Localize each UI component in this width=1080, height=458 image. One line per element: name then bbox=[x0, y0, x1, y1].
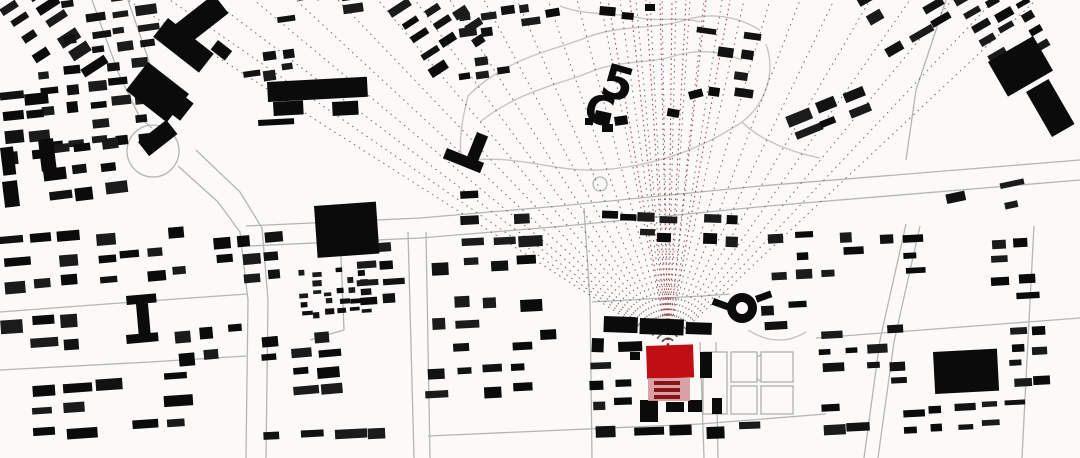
building bbox=[332, 101, 359, 116]
building bbox=[640, 400, 658, 422]
building bbox=[933, 349, 999, 394]
building bbox=[614, 397, 632, 405]
building bbox=[484, 386, 502, 398]
building bbox=[590, 362, 611, 369]
building bbox=[60, 314, 78, 328]
building bbox=[516, 255, 536, 265]
building bbox=[64, 339, 80, 351]
building bbox=[147, 270, 166, 282]
building bbox=[1013, 238, 1028, 248]
building bbox=[313, 290, 321, 294]
building bbox=[32, 385, 55, 397]
building bbox=[821, 269, 835, 277]
building bbox=[483, 297, 497, 308]
building bbox=[428, 368, 445, 379]
building bbox=[321, 383, 343, 395]
building bbox=[291, 347, 312, 358]
building bbox=[846, 422, 870, 432]
building bbox=[1012, 344, 1025, 352]
building bbox=[72, 164, 87, 175]
building bbox=[602, 211, 618, 219]
map-canvas: 5C bbox=[0, 0, 1080, 458]
building bbox=[314, 331, 329, 343]
building bbox=[620, 214, 637, 221]
building bbox=[512, 342, 532, 351]
building bbox=[298, 270, 304, 276]
building bbox=[460, 215, 479, 225]
building bbox=[1016, 292, 1040, 300]
building bbox=[795, 231, 813, 238]
building bbox=[880, 234, 894, 244]
building bbox=[712, 398, 722, 414]
building bbox=[213, 237, 231, 250]
building bbox=[903, 409, 925, 417]
building bbox=[519, 4, 529, 13]
building bbox=[432, 262, 449, 276]
building bbox=[242, 253, 261, 265]
building bbox=[337, 288, 344, 294]
building bbox=[621, 12, 634, 20]
building bbox=[32, 315, 54, 326]
building bbox=[299, 293, 308, 298]
building bbox=[520, 299, 543, 312]
building bbox=[325, 308, 335, 315]
building bbox=[283, 49, 295, 59]
building bbox=[1032, 326, 1046, 335]
building bbox=[464, 257, 479, 265]
building bbox=[168, 226, 184, 238]
building bbox=[459, 13, 471, 22]
building bbox=[67, 427, 98, 440]
building bbox=[824, 424, 846, 435]
building bbox=[630, 352, 640, 360]
building bbox=[362, 309, 372, 313]
building bbox=[889, 362, 905, 372]
building bbox=[708, 87, 720, 97]
building bbox=[1010, 327, 1027, 335]
building bbox=[453, 343, 469, 352]
building bbox=[768, 234, 784, 244]
building bbox=[357, 260, 377, 268]
building bbox=[867, 344, 888, 354]
site-annex-wing bbox=[654, 395, 680, 399]
building bbox=[614, 115, 628, 126]
building bbox=[66, 101, 78, 113]
building bbox=[34, 278, 51, 289]
building bbox=[4, 281, 26, 295]
building bbox=[361, 288, 372, 295]
building bbox=[659, 216, 677, 223]
site-analysis-figure: 5C bbox=[0, 0, 1080, 458]
background-layer bbox=[0, 0, 1080, 458]
building bbox=[704, 214, 721, 223]
building bbox=[700, 352, 712, 378]
building bbox=[203, 349, 218, 360]
site-annex-wing bbox=[654, 381, 680, 385]
building bbox=[56, 230, 80, 242]
building bbox=[102, 137, 119, 150]
building bbox=[540, 329, 557, 340]
building bbox=[262, 336, 279, 348]
building bbox=[958, 424, 973, 430]
building bbox=[199, 327, 213, 340]
building bbox=[358, 270, 365, 276]
building bbox=[903, 234, 924, 243]
building bbox=[954, 403, 975, 411]
building bbox=[727, 215, 738, 224]
building bbox=[867, 362, 880, 369]
building bbox=[312, 272, 322, 277]
building bbox=[368, 428, 386, 440]
building bbox=[379, 260, 393, 269]
open-parcel bbox=[731, 386, 757, 414]
building bbox=[455, 320, 479, 329]
building bbox=[74, 186, 93, 201]
building bbox=[982, 401, 997, 407]
building bbox=[640, 229, 655, 236]
building bbox=[264, 231, 283, 243]
open-parcel bbox=[731, 352, 757, 382]
building bbox=[845, 347, 857, 353]
building bbox=[350, 307, 360, 311]
building bbox=[615, 379, 631, 387]
building bbox=[761, 305, 774, 315]
building bbox=[666, 402, 684, 412]
building bbox=[494, 237, 516, 246]
building bbox=[348, 287, 355, 293]
building bbox=[454, 296, 470, 308]
building bbox=[2, 180, 20, 208]
building bbox=[147, 247, 163, 257]
building bbox=[32, 407, 52, 415]
building bbox=[1014, 378, 1032, 387]
building bbox=[482, 364, 502, 373]
building bbox=[797, 252, 809, 260]
building bbox=[63, 65, 80, 75]
building bbox=[634, 427, 664, 436]
building bbox=[511, 363, 525, 371]
building bbox=[645, 4, 655, 11]
building bbox=[326, 298, 333, 304]
ring-building-courtyard bbox=[736, 302, 748, 314]
building bbox=[164, 394, 194, 407]
building bbox=[474, 56, 488, 66]
building bbox=[903, 252, 916, 259]
building bbox=[337, 308, 346, 314]
building bbox=[788, 301, 806, 308]
building bbox=[172, 266, 186, 275]
building bbox=[96, 233, 116, 246]
map-background bbox=[0, 0, 1080, 458]
building bbox=[273, 100, 304, 116]
building bbox=[991, 255, 1008, 263]
building bbox=[425, 390, 448, 398]
building bbox=[703, 233, 717, 244]
building bbox=[518, 235, 543, 247]
building bbox=[179, 352, 196, 366]
building bbox=[30, 337, 58, 348]
building bbox=[741, 49, 754, 60]
building bbox=[237, 235, 250, 247]
building bbox=[92, 118, 109, 129]
building bbox=[686, 322, 712, 335]
building bbox=[335, 267, 342, 272]
building bbox=[1009, 359, 1021, 365]
building bbox=[38, 71, 49, 79]
building bbox=[706, 426, 724, 439]
building bbox=[174, 331, 191, 344]
building bbox=[481, 27, 493, 37]
building bbox=[891, 377, 907, 384]
building bbox=[95, 378, 122, 391]
building bbox=[513, 382, 533, 391]
building bbox=[167, 418, 185, 427]
building bbox=[739, 421, 760, 429]
building bbox=[514, 213, 530, 224]
building bbox=[88, 80, 107, 92]
building bbox=[725, 236, 738, 247]
building bbox=[293, 367, 309, 375]
building bbox=[302, 311, 313, 316]
building bbox=[107, 62, 120, 71]
building bbox=[63, 402, 85, 414]
building bbox=[4, 129, 24, 144]
building bbox=[312, 280, 322, 287]
building bbox=[268, 269, 281, 279]
building bbox=[657, 233, 671, 243]
open-parcel bbox=[761, 386, 793, 414]
building bbox=[301, 429, 324, 437]
building bbox=[930, 423, 942, 431]
site-marker-layer bbox=[646, 344, 694, 401]
building bbox=[457, 367, 471, 374]
open-parcel bbox=[761, 352, 793, 382]
building bbox=[771, 272, 786, 280]
building bbox=[595, 426, 615, 438]
building bbox=[592, 338, 604, 352]
building bbox=[639, 318, 684, 336]
building bbox=[688, 400, 702, 412]
building bbox=[1033, 375, 1050, 385]
building bbox=[764, 321, 787, 330]
building bbox=[618, 341, 642, 352]
building bbox=[379, 242, 392, 252]
building bbox=[262, 51, 276, 62]
building bbox=[263, 70, 277, 82]
building bbox=[335, 428, 368, 439]
building bbox=[135, 114, 147, 123]
building bbox=[301, 302, 308, 308]
building bbox=[992, 240, 1006, 250]
building bbox=[599, 6, 616, 16]
building bbox=[59, 254, 78, 267]
building bbox=[263, 251, 278, 261]
building bbox=[317, 366, 340, 379]
building bbox=[819, 349, 831, 355]
building bbox=[0, 319, 23, 334]
building bbox=[603, 316, 638, 333]
building bbox=[1019, 274, 1036, 284]
building bbox=[67, 84, 80, 95]
building bbox=[906, 267, 926, 274]
building bbox=[982, 419, 1000, 426]
building bbox=[63, 35, 76, 45]
building bbox=[461, 238, 484, 247]
building bbox=[98, 254, 116, 263]
building bbox=[904, 426, 917, 433]
building bbox=[1032, 346, 1048, 355]
site-annex-wing bbox=[654, 388, 680, 392]
building bbox=[840, 232, 852, 243]
building bbox=[132, 419, 158, 429]
building bbox=[228, 324, 242, 332]
building bbox=[589, 381, 603, 391]
building bbox=[460, 190, 478, 198]
building bbox=[314, 202, 379, 258]
building bbox=[593, 401, 605, 410]
building bbox=[928, 406, 941, 414]
building bbox=[796, 269, 813, 279]
building bbox=[244, 273, 261, 283]
building bbox=[821, 331, 843, 339]
building bbox=[216, 254, 233, 263]
building bbox=[261, 353, 276, 361]
building bbox=[324, 292, 332, 296]
building bbox=[33, 427, 55, 436]
building bbox=[669, 424, 691, 435]
building bbox=[360, 297, 377, 306]
building bbox=[887, 324, 903, 333]
building bbox=[843, 246, 864, 255]
building bbox=[637, 212, 654, 222]
building bbox=[823, 362, 845, 372]
site-building-highlight bbox=[646, 344, 694, 379]
building bbox=[491, 260, 509, 271]
building bbox=[382, 293, 395, 303]
building bbox=[821, 404, 840, 412]
building bbox=[263, 431, 279, 439]
building bbox=[347, 277, 353, 283]
building bbox=[991, 277, 1010, 286]
building bbox=[30, 232, 52, 243]
building bbox=[313, 312, 320, 318]
building bbox=[340, 298, 350, 304]
building bbox=[432, 318, 445, 330]
building bbox=[350, 298, 361, 303]
building bbox=[61, 274, 78, 286]
